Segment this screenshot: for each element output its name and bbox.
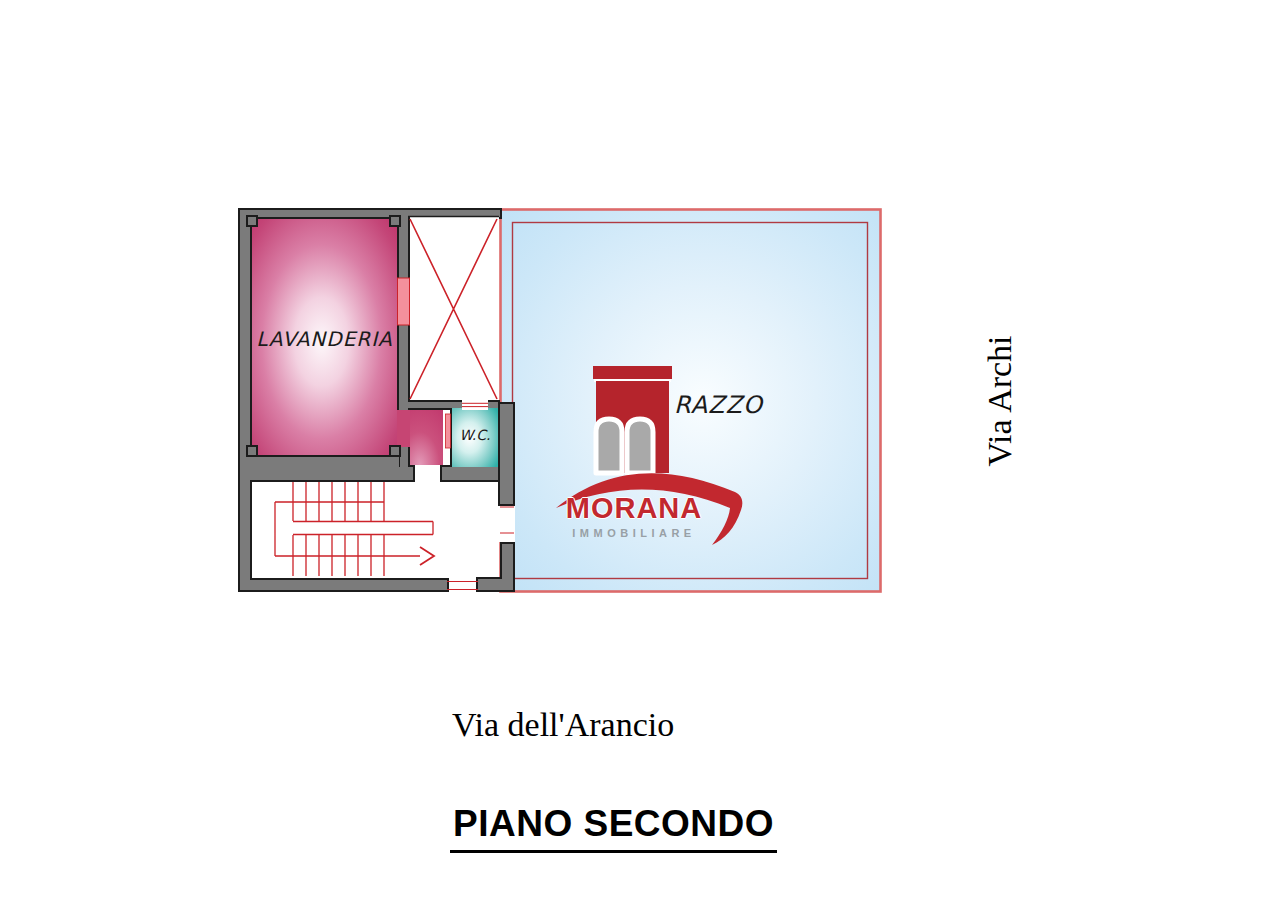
anteroom	[410, 410, 443, 465]
lavanderia-label: LAVANDERIA	[250, 327, 399, 351]
watermark-brand: MORANA	[560, 492, 708, 525]
stair-direction-arrow	[420, 547, 434, 565]
window-marker	[398, 278, 410, 325]
street-label-via-dell-arancio: Via dell'Arancio	[452, 706, 674, 744]
lavanderia-doorway	[397, 410, 410, 447]
page-title: PIANO SECONDO	[450, 803, 777, 853]
floor-plan-page: LAVANDERIA W.C. RAZZO MORANA IMMOBILIARE…	[0, 0, 1274, 900]
wc-label: W.C.	[450, 427, 500, 443]
logo-tower-cap	[593, 366, 672, 379]
terrace-partial-label: RAZZO	[674, 391, 763, 419]
floor-plan-drawing	[0, 0, 1274, 900]
watermark-tagline: IMMOBILIARE	[560, 527, 708, 539]
street-label-via-archi: Via Archi	[981, 301, 1017, 501]
stairs	[275, 482, 433, 576]
